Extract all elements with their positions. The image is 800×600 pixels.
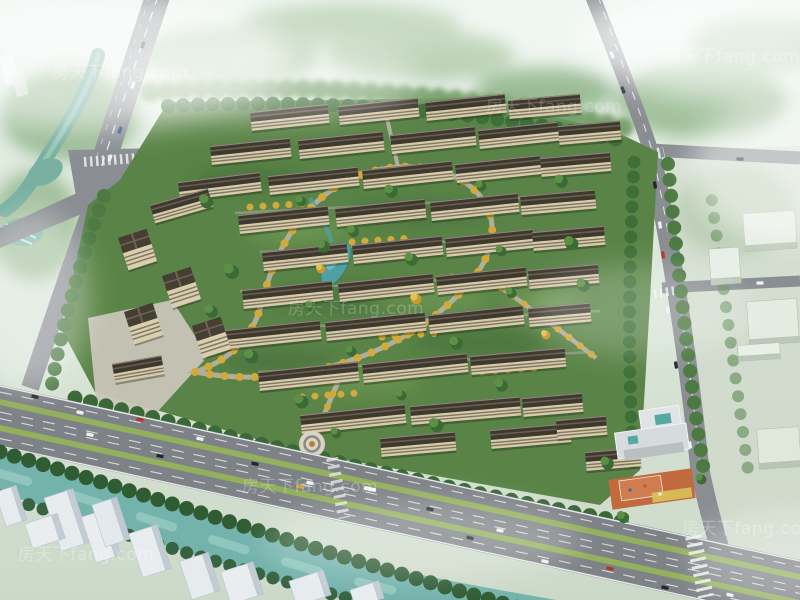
- massing-building: [737, 343, 780, 362]
- watermark-text: 房天下fang.com: [288, 299, 424, 319]
- car: [756, 281, 763, 285]
- watermark-text: 房天下fang.com: [18, 545, 154, 565]
- watermark-text: 房天下fang.com: [52, 63, 188, 83]
- teal-roof: [627, 435, 638, 444]
- watermark-text: 房天下fang.com: [664, 47, 800, 67]
- massing-building: [747, 298, 800, 345]
- apartment-building: [556, 416, 608, 442]
- watermark-text: 房天下fang.com: [486, 97, 622, 117]
- massing-building: [757, 427, 800, 470]
- watermark-text: 房天下fang.com: [242, 477, 378, 497]
- watermark-text: 房天下fang.com: [682, 519, 800, 539]
- aerial-render-image: 房天下fang.com 房天下fang.com 房天下fang.com 房天下f…: [0, 0, 800, 600]
